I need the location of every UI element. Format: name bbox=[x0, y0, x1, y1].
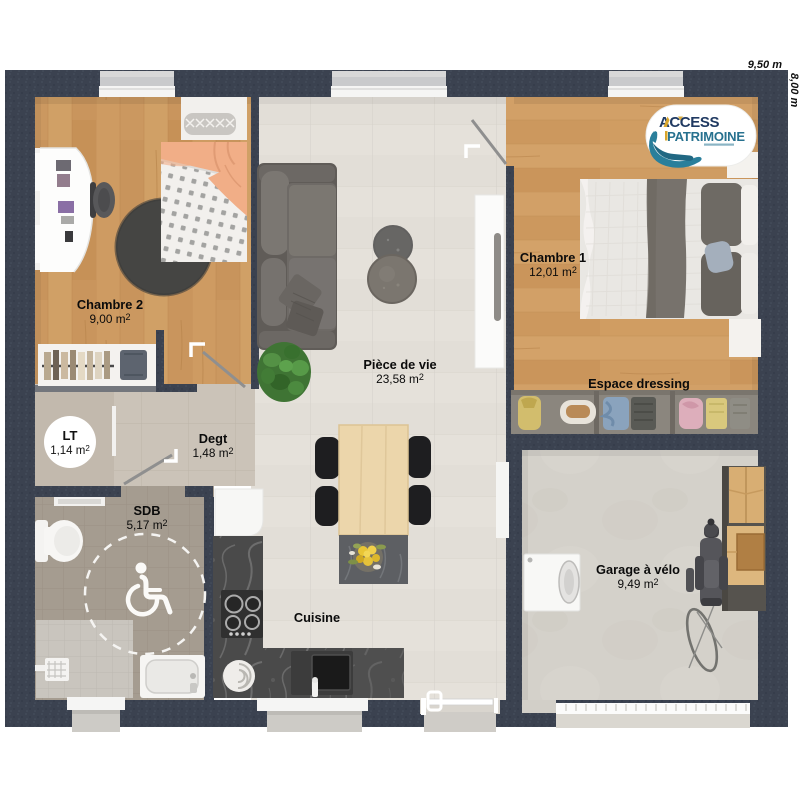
svg-text:9,00 m2: 9,00 m2 bbox=[89, 312, 130, 326]
svg-text:9,49 m2: 9,49 m2 bbox=[617, 577, 658, 591]
svg-text:Degt: Degt bbox=[199, 431, 228, 446]
svg-text:12,01 m2: 12,01 m2 bbox=[529, 265, 577, 279]
svg-text:Espace dressing: Espace dressing bbox=[588, 376, 690, 391]
svg-text:1,48 m2: 1,48 m2 bbox=[192, 446, 233, 460]
svg-text:Chambre 2: Chambre 2 bbox=[77, 297, 143, 312]
svg-text:PATRIMOINE: PATRIMOINE bbox=[667, 129, 745, 144]
svg-text:9,50 m: 9,50 m bbox=[748, 59, 782, 71]
svg-text:Garage à vélo: Garage à vélo bbox=[596, 562, 680, 577]
svg-text:LT: LT bbox=[63, 428, 78, 443]
svg-text:Cuisine: Cuisine bbox=[294, 610, 340, 625]
svg-text:5,17 m2: 5,17 m2 bbox=[126, 518, 167, 532]
svg-text:8,00 m: 8,00 m bbox=[788, 73, 800, 107]
svg-text:1,14 m2: 1,14 m2 bbox=[50, 444, 90, 457]
svg-text:SDB: SDB bbox=[133, 503, 160, 518]
svg-text:Pièce de vie: Pièce de vie bbox=[363, 357, 436, 372]
svg-text:Chambre 1: Chambre 1 bbox=[520, 250, 586, 265]
svg-text:23,58 m2: 23,58 m2 bbox=[376, 372, 424, 386]
